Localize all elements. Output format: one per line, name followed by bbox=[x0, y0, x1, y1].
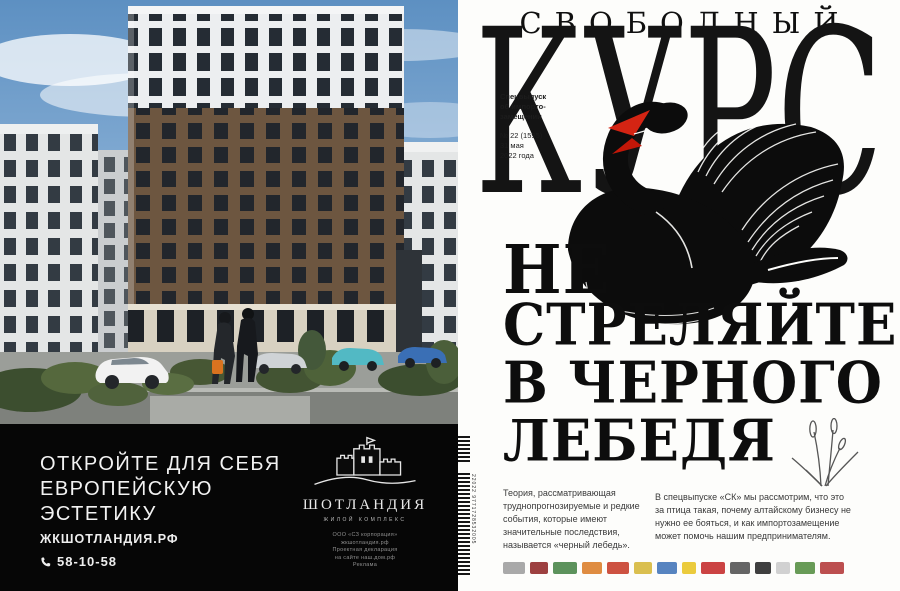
reeds-illustration bbox=[776, 418, 868, 490]
barcode-main bbox=[458, 473, 470, 575]
ad-band: ОТКРОЙТЕ ДЛЯ СЕБЯ ЕВРОПЕЙСКУЮ ЭСТЕТИКУ Ж… bbox=[0, 424, 458, 591]
castle-logo-icon bbox=[307, 432, 423, 490]
lede-right: В спецвыпуске «СК» мы рассмотрим, что эт… bbox=[655, 491, 851, 543]
sponsor-logo-8 bbox=[701, 562, 725, 574]
sponsor-logo-9 bbox=[730, 562, 750, 574]
disclaimer-line: Проектная декларация bbox=[300, 547, 430, 555]
issue-number: № 22 (1595) bbox=[500, 131, 580, 141]
issue-line: Спецвыпуск bbox=[500, 92, 580, 102]
sponsor-logo-12 bbox=[795, 562, 815, 574]
sponsor-logo-1 bbox=[530, 562, 548, 574]
disclaimer-line: на сайте наш.дом.рф bbox=[300, 555, 430, 563]
newspaper-cover-page: СВОБОДНЫЙ КУРС Спецвыпуск об импорто- за… bbox=[458, 0, 900, 591]
sponsor-logo-5 bbox=[634, 562, 652, 574]
ad-headline-line: ЕВРОПЕЙСКУЮ bbox=[40, 477, 281, 502]
ad-headline: ОТКРОЙТЕ ДЛЯ СЕБЯ ЕВРОПЕЙСКУЮ ЭСТЕТИКУ bbox=[40, 452, 281, 527]
building-left bbox=[0, 132, 98, 372]
barcode-addon-digits: 22022 bbox=[470, 474, 476, 493]
sponsor-logo-row bbox=[503, 560, 853, 575]
ad-headline-line: ОТКРОЙТЕ ДЛЯ СЕБЯ bbox=[40, 452, 281, 477]
issue-line: об импорто- bbox=[500, 102, 580, 112]
headline-line: ЛЕБЕДЯ bbox=[503, 413, 776, 470]
building-render bbox=[0, 0, 458, 424]
brand-subtitle: ЖИЛОЙ КОМПЛЕКС bbox=[300, 517, 430, 523]
issue-date: 31 мая bbox=[500, 141, 580, 151]
ad-phone-number: 58-10-58 bbox=[57, 554, 117, 569]
headline-line: В ЧЕРНОГО bbox=[503, 355, 883, 412]
walkway bbox=[150, 396, 310, 424]
sponsor-logo-6 bbox=[657, 562, 677, 574]
sponsor-logo-10 bbox=[755, 562, 771, 574]
magazine-spread: ОТКРОЙТЕ ДЛЯ СЕБЯ ЕВРОПЕЙСКУЮ ЭСТЕТИКУ Ж… bbox=[0, 0, 900, 591]
issue-date: 2022 года bbox=[500, 151, 580, 161]
orange-bag bbox=[212, 360, 223, 374]
headline-line: СТРЕЛЯЙТЕ bbox=[503, 297, 897, 354]
sponsor-logo-3 bbox=[582, 562, 602, 574]
phone-icon bbox=[40, 556, 52, 568]
ad-website: ЖКШОТЛАНДИЯ.РФ bbox=[40, 532, 179, 546]
sponsor-logo-2 bbox=[553, 562, 577, 574]
ad-phone: 58-10-58 bbox=[40, 554, 117, 569]
disclaimer-line: Реклама bbox=[300, 562, 430, 570]
brand-block: ШОТЛАНДИЯ ЖИЛОЙ КОМПЛЕКС ООО «СЗ корпора… bbox=[300, 432, 430, 570]
real-estate-ad-page: ОТКРОЙТЕ ДЛЯ СЕБЯ ЕВРОПЕЙСКУЮ ЭСТЕТИКУ Ж… bbox=[0, 0, 458, 591]
barcode-main-digits: 9771728532005 bbox=[470, 495, 476, 544]
sponsor-logo-7 bbox=[682, 562, 696, 574]
barcode-addon bbox=[458, 436, 470, 464]
lede-left: Теория, рассматривающая труднопрогнозиру… bbox=[503, 487, 655, 552]
sponsor-logo-4 bbox=[607, 562, 629, 574]
issue-info: Спецвыпуск об импорто- замещении № 22 (1… bbox=[500, 92, 580, 161]
issue-line: замещении bbox=[500, 112, 580, 122]
sponsor-logo-13 bbox=[820, 562, 844, 574]
brand-name: ШОТЛАНДИЯ bbox=[300, 497, 430, 514]
barcode: 22022 9771728532005 bbox=[458, 436, 478, 575]
brand-disclaimer: ООО «СЗ корпорация» жкшотландия.рф Проек… bbox=[300, 532, 430, 570]
disclaimer-line: жкшотландия.рф bbox=[300, 540, 430, 548]
building-render-art bbox=[0, 0, 458, 424]
building-center-top bbox=[128, 12, 404, 108]
building-center-brick bbox=[128, 108, 404, 308]
ad-headline-line: ЭСТЕТИКУ bbox=[40, 502, 281, 527]
disclaimer-line: ООО «СЗ корпорация» bbox=[300, 532, 430, 540]
sponsor-logo-11 bbox=[776, 562, 790, 574]
sponsor-logo-0 bbox=[503, 562, 525, 574]
